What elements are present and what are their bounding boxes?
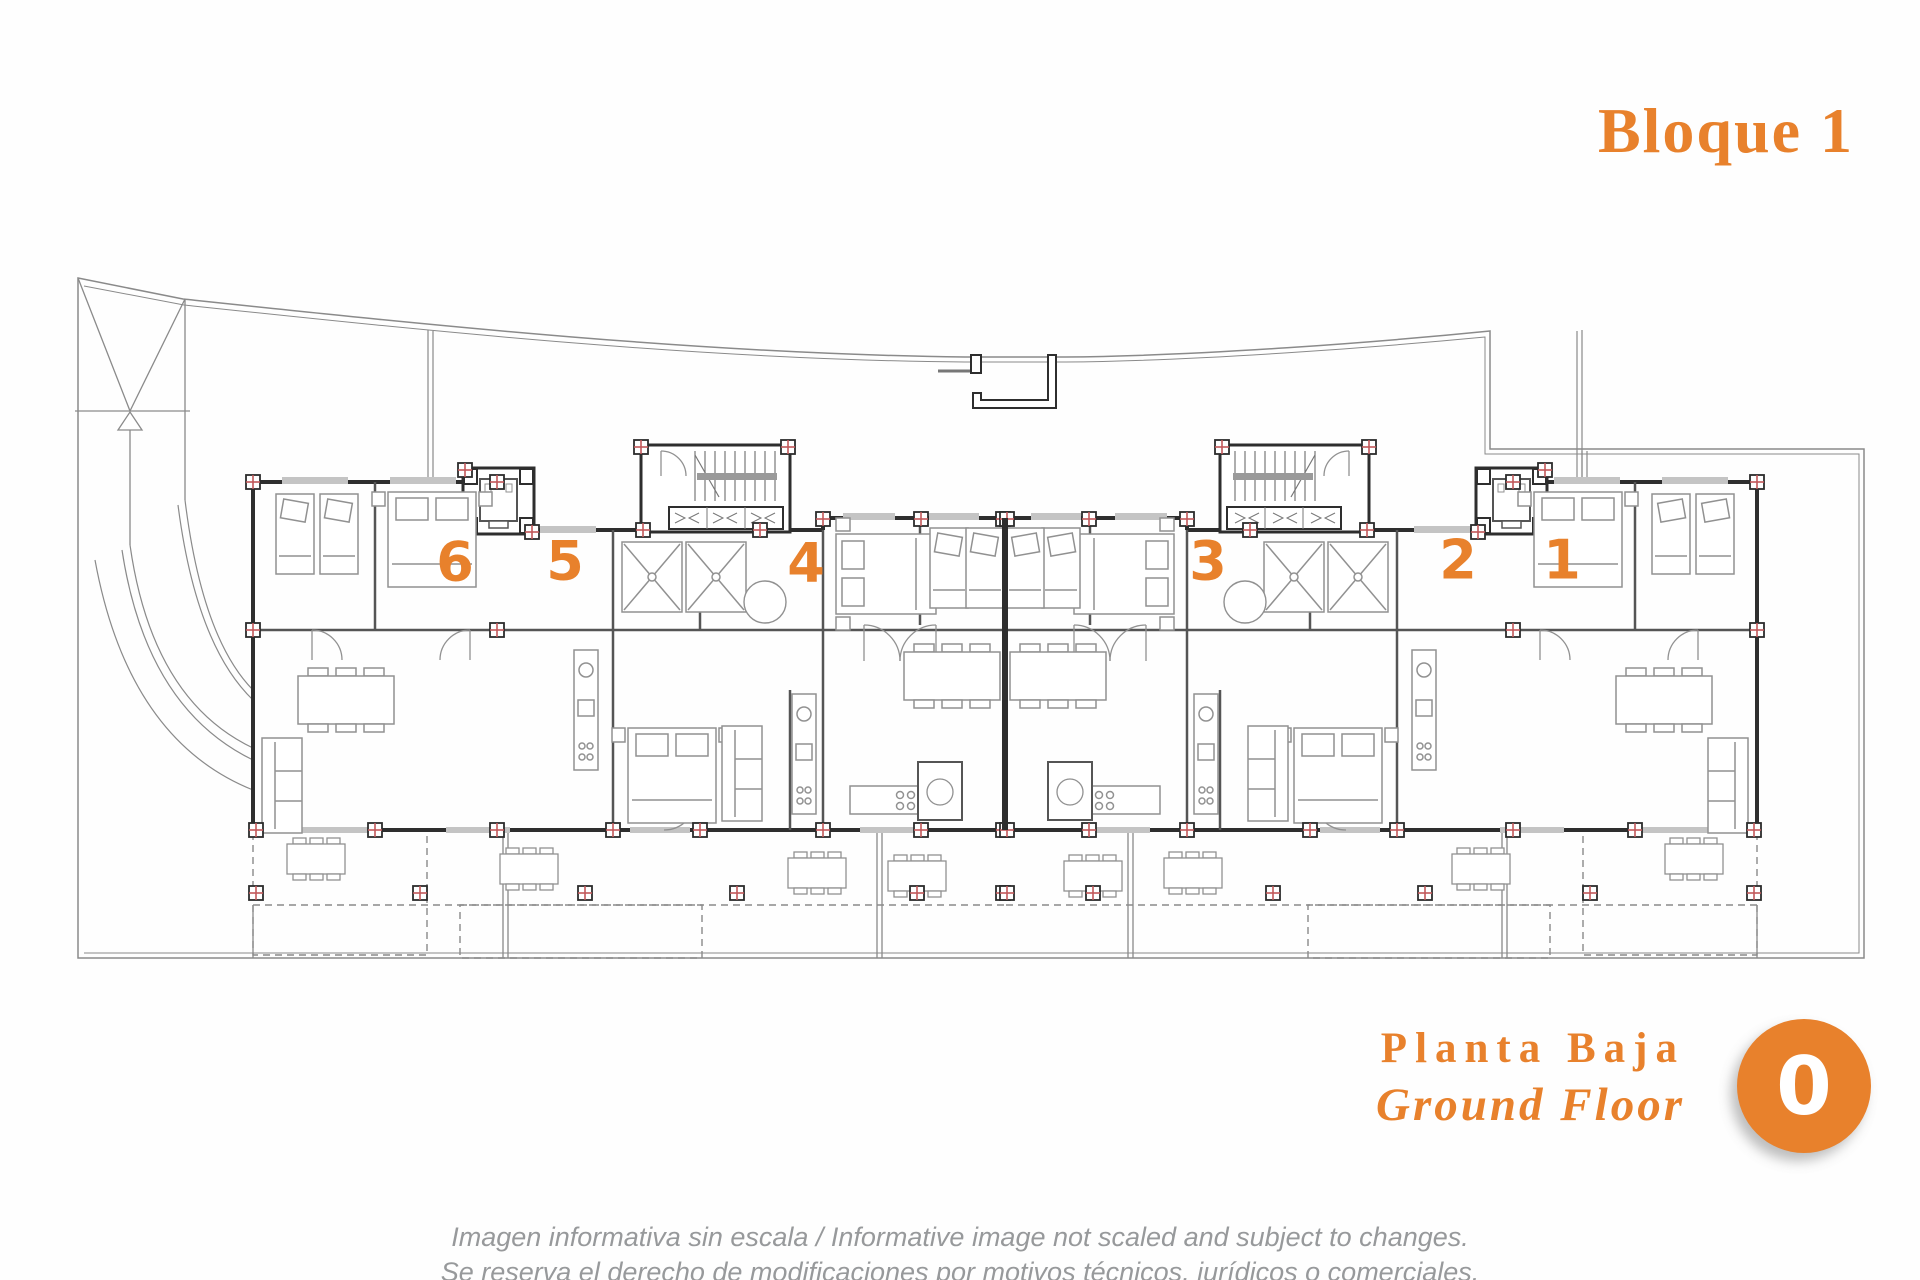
- unit-number-1: 1: [1543, 529, 1581, 592]
- unit-number-6: 6: [436, 531, 474, 594]
- floor-number: 0: [1776, 1040, 1832, 1133]
- floor-label-english: Ground Floor: [1376, 1078, 1685, 1132]
- unit-number-4: 4: [787, 532, 825, 595]
- unit-number-3: 3: [1189, 530, 1227, 593]
- site-entrance-marker: [75, 278, 190, 545]
- disclaimer-line-2: Se reserva el derecho de modificaciones …: [0, 1255, 1920, 1280]
- floorplan-page: Bloque 1 6 5 4 3 2 1 Planta Baja Ground …: [0, 0, 1920, 1280]
- building-right-half: [1000, 330, 1764, 958]
- driveway-arcs: [95, 500, 253, 790]
- unit-number-5: 5: [546, 530, 584, 593]
- disclaimer-line-1: Imagen informativa sin escala / Informat…: [0, 1220, 1920, 1255]
- floor-label-spanish: Planta Baja: [1381, 1024, 1685, 1073]
- site-wall-structure: [938, 355, 1056, 408]
- building-left-half: [246, 330, 1010, 958]
- block-title: Bloque 1: [1598, 94, 1854, 168]
- unit-number-2: 2: [1439, 529, 1477, 592]
- floor-number-badge: 0: [1737, 1019, 1871, 1153]
- site-boundary: [78, 278, 1864, 958]
- disclaimer: Imagen informativa sin escala / Informat…: [0, 1220, 1920, 1280]
